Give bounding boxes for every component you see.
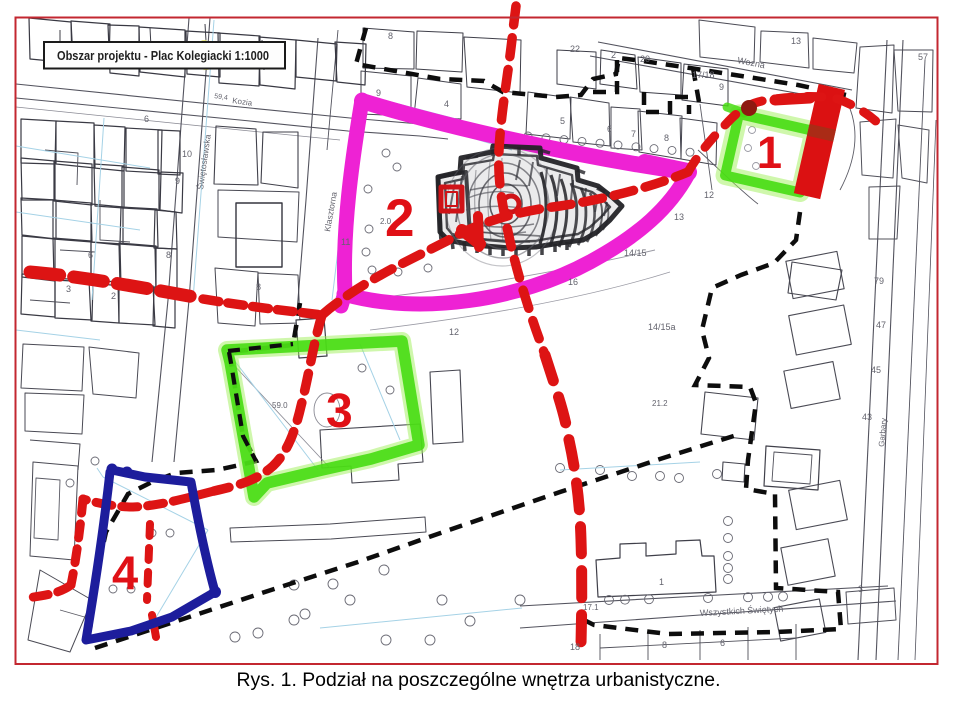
svg-text:3: 3 <box>858 584 863 594</box>
svg-text:3: 3 <box>326 385 353 438</box>
svg-text:13: 13 <box>791 36 801 46</box>
svg-text:59.0: 59.0 <box>272 401 288 410</box>
svg-text:6: 6 <box>88 250 93 260</box>
svg-text:7: 7 <box>631 129 636 139</box>
svg-text:8: 8 <box>664 133 669 143</box>
svg-text:14/15: 14/15 <box>624 248 647 258</box>
svg-text:17.1: 17.1 <box>583 603 599 612</box>
svg-text:3: 3 <box>66 284 71 294</box>
svg-text:2.0: 2.0 <box>380 217 392 226</box>
svg-text:22: 22 <box>570 44 580 54</box>
svg-text:57: 57 <box>918 52 928 62</box>
svg-text:4: 4 <box>444 99 449 109</box>
svg-text:20: 20 <box>640 54 650 64</box>
svg-text:11: 11 <box>341 237 350 247</box>
svg-text:6: 6 <box>607 124 612 134</box>
svg-text:12: 12 <box>704 190 714 200</box>
svg-text:13: 13 <box>674 212 684 222</box>
svg-text:2: 2 <box>611 50 616 60</box>
svg-text:12: 12 <box>449 327 459 337</box>
svg-text:17/18: 17/18 <box>692 70 715 80</box>
svg-text:47: 47 <box>876 320 886 330</box>
svg-text:8: 8 <box>256 282 261 292</box>
svg-text:8: 8 <box>388 31 393 41</box>
svg-text:9: 9 <box>376 88 381 98</box>
svg-text:43: 43 <box>862 412 872 422</box>
svg-text:2: 2 <box>111 291 116 301</box>
svg-text:8: 8 <box>166 250 171 260</box>
svg-text:4: 4 <box>112 546 138 599</box>
svg-text:45: 45 <box>871 365 881 375</box>
svg-text:21.2: 21.2 <box>652 399 668 408</box>
svg-text:9: 9 <box>719 82 724 92</box>
svg-text:1: 1 <box>659 577 664 587</box>
svg-text:79: 79 <box>874 276 884 286</box>
svg-text:6: 6 <box>720 638 725 648</box>
svg-text:9: 9 <box>175 176 180 186</box>
svg-text:Obszar projektu - Plac Kolegia: Obszar projektu - Plac Kolegiacki 1:1000 <box>57 49 269 63</box>
svg-text:10: 10 <box>182 149 192 159</box>
svg-text:5: 5 <box>560 116 565 126</box>
svg-text:16: 16 <box>568 277 578 287</box>
svg-text:6: 6 <box>144 114 149 124</box>
svg-text:18: 18 <box>570 642 580 652</box>
svg-text:1: 1 <box>757 127 782 178</box>
svg-text:8: 8 <box>662 640 667 650</box>
svg-text:14/15a: 14/15a <box>648 322 676 332</box>
